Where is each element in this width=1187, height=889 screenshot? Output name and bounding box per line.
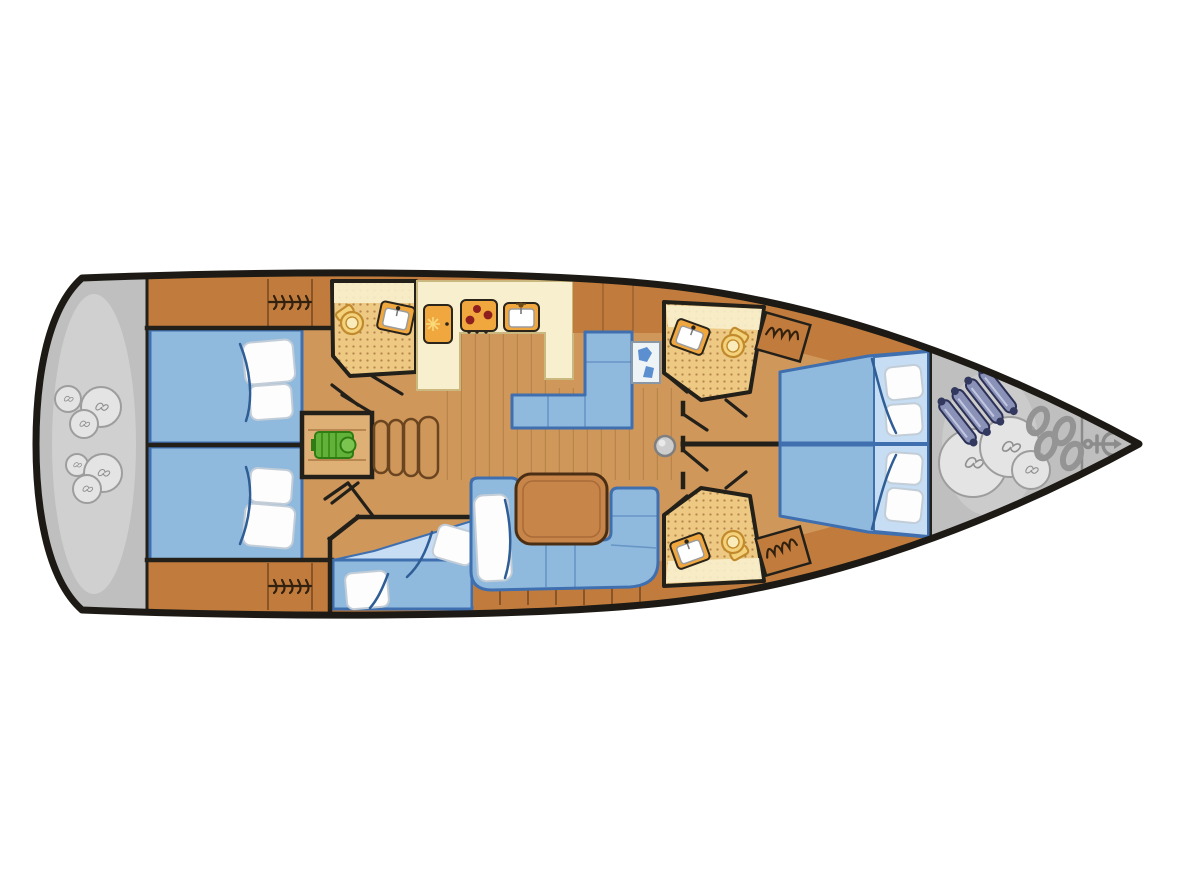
salon-table <box>516 474 607 544</box>
aft-cabin-port-bed <box>150 330 302 443</box>
stove-icon <box>461 300 497 334</box>
engine-icon <box>311 432 356 458</box>
deck-plan-svg <box>0 0 1187 889</box>
galley-floor <box>458 332 546 390</box>
pillow <box>345 570 390 610</box>
washbasin-icon <box>376 301 415 335</box>
stern-platform-highlight <box>52 294 136 594</box>
chart-icon <box>632 342 660 383</box>
pillow <box>884 364 923 401</box>
engine-compartment <box>302 413 372 477</box>
yacht-deck-plan <box>0 0 1187 889</box>
salon <box>471 474 658 606</box>
vanity-counter <box>334 283 414 303</box>
galley-sink-icon <box>504 302 539 331</box>
aft-cabin-starboard-bed <box>150 447 302 560</box>
fore-head-port <box>664 302 764 400</box>
pillow <box>249 468 293 505</box>
companionway-stairs-icon <box>374 417 438 478</box>
fore-head-starboard <box>664 488 764 586</box>
fridge-icon <box>424 305 452 343</box>
mast-icon <box>655 436 675 456</box>
nav-cabinet <box>573 281 665 333</box>
pillow <box>249 384 293 421</box>
pillow <box>884 487 923 524</box>
